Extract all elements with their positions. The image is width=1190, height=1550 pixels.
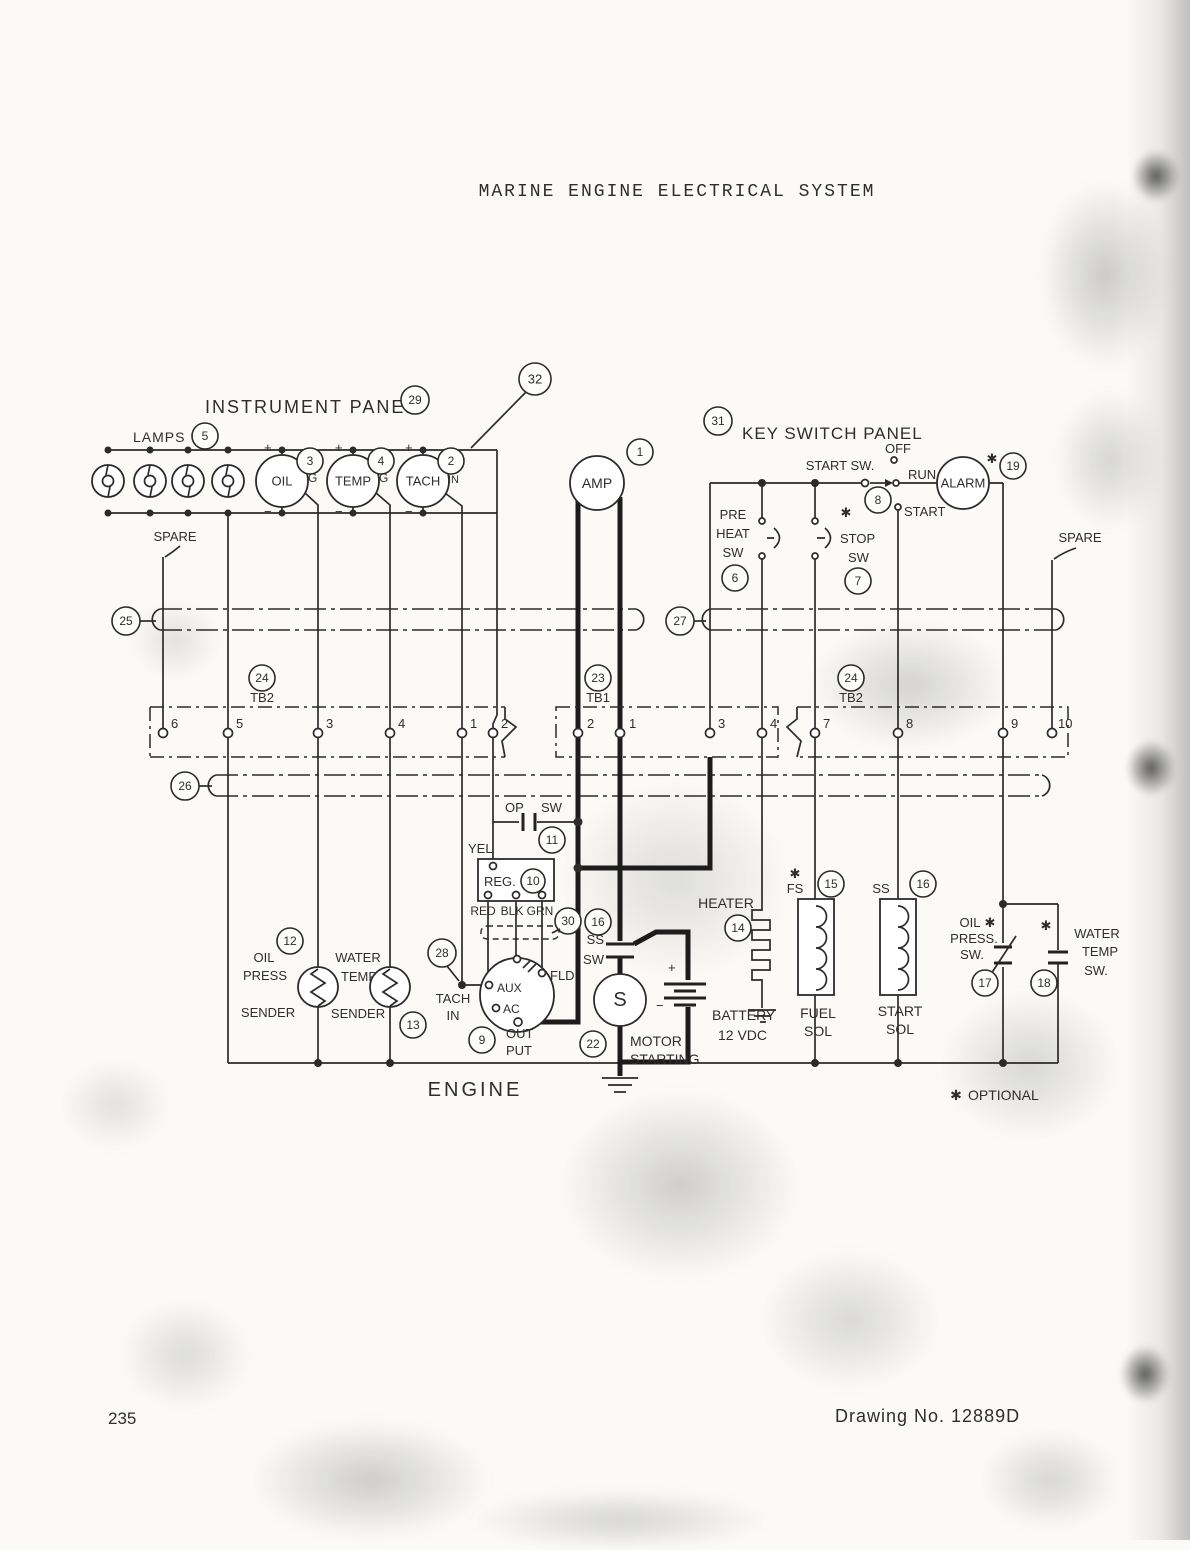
key-position-start: START — [904, 504, 945, 519]
harness-loom-27: 27 — [666, 607, 1064, 635]
heater: HEATER 14 — [698, 895, 776, 1022]
terminal-block-tb1: 23 TB1 2 1 3 4 — [556, 665, 778, 757]
callout-24: 24 — [844, 671, 858, 685]
alternator-fld-terminal: FLD — [550, 968, 575, 983]
callout-17: 17 — [978, 976, 992, 990]
callout-2: 2 — [448, 454, 455, 468]
page-number: 235 — [108, 1409, 136, 1428]
terminal-block-tb2-left: 24 TB2 6 5 3 4 1 2 — [150, 665, 516, 757]
callout-18: 18 — [1037, 976, 1051, 990]
tb2-right-name: TB2 — [839, 690, 863, 705]
callout-32-leader — [471, 392, 526, 448]
alternator-output-label-2: PUT — [506, 1043, 532, 1058]
callout-28-leader — [447, 966, 459, 981]
tb1-name: TB1 — [586, 690, 610, 705]
terminal-number: 1 — [470, 716, 477, 731]
water-temp-switch: ✱ WATER TEMP SW. 18 — [1031, 918, 1120, 996]
callout-6: 6 — [732, 571, 739, 585]
voltage-regulator: YEL REG. 10 RED BLK GRN 30 — [468, 841, 581, 939]
water-sender-label-1: WATER — [335, 950, 381, 965]
callout-14: 14 — [731, 921, 745, 935]
stop-label-2: SW — [848, 550, 870, 565]
start-switch-label: START SW. — [806, 458, 875, 473]
oil-press-sw-label-3: SW. — [960, 947, 984, 962]
callout-16: 16 — [591, 915, 605, 929]
start-solenoid-switch-contact: SS SW 16 — [583, 909, 634, 967]
tach-gauge-terminal: IN — [448, 474, 459, 486]
op-label: OP — [505, 800, 524, 815]
panel-lamp — [92, 465, 124, 497]
callout-3: 3 — [307, 454, 314, 468]
plus-mark: + — [335, 440, 343, 455]
scanned-page: { "colors":{"ink":"#2b2b2b","paper":"#fb… — [0, 0, 1190, 1540]
motor-starting-label-2: STARTING — [630, 1051, 700, 1067]
instrument-panel: INSTRUMENT PANEL 29 32 LAMPS 5 — [92, 363, 551, 557]
alternator-aux-terminal: AUX — [497, 981, 522, 995]
oil-gauge: OIL + − G 3 — [256, 440, 323, 519]
plus-mark: + — [264, 440, 272, 455]
callout-32: 32 — [528, 372, 542, 387]
pre-heat-label-1: PRE — [720, 507, 747, 522]
callout-31: 31 — [711, 414, 725, 428]
terminal-number: 4 — [770, 716, 777, 731]
fuel-solenoid-label-2: SOL — [804, 1023, 832, 1039]
water-temp-sw-label-1: WATER — [1074, 926, 1120, 941]
fuel-solenoid-label-1: FUEL — [800, 1005, 836, 1021]
stop-switch: ✱ STOP SW 7 — [812, 505, 875, 594]
amp-meter-label: AMP — [582, 475, 612, 491]
terminal-number: 5 — [236, 716, 243, 731]
optional-star-icon: ✱ — [950, 1087, 962, 1103]
oil-pressure-switch: OIL ✱ PRESS. SW. 17 — [950, 915, 1016, 996]
terminal-number: 1 — [629, 716, 636, 731]
water-temp-sender: WATER TEMP SENDER 13 — [331, 950, 426, 1038]
panel-lamp — [212, 465, 244, 497]
wire-color-yel: YEL — [468, 841, 493, 856]
callout-27: 27 — [673, 614, 687, 628]
instrument-panel-title: INSTRUMENT PANEL — [205, 397, 417, 417]
callout-4: 4 — [378, 454, 385, 468]
callout-8: 8 — [875, 493, 882, 507]
oil-press-sender: 12 OIL PRESS SENDER — [241, 928, 338, 1020]
key-position-run: RUN — [908, 467, 936, 482]
callout-28: 28 — [435, 946, 449, 960]
terminal-number: 2 — [501, 716, 508, 731]
stop-label-1: STOP — [840, 531, 875, 546]
water-temp-sw-label-2: TEMP — [1082, 944, 1118, 959]
alternator: AUX AC FLD OUT PUT 9 28 TACH IN — [428, 939, 575, 1058]
regulator-label: REG. — [484, 874, 516, 889]
terminal-number: 4 — [398, 716, 405, 731]
harness-loom-26: 26 — [171, 772, 1050, 800]
start-solenoid: SS 16 START SOL — [872, 871, 936, 1037]
ground-symbol — [602, 1078, 638, 1092]
tach-gauge: TACH + − IN 2 — [397, 440, 464, 519]
oil-pressure-op-switch: OP SW 11 — [505, 800, 565, 853]
spare-left-label: SPARE — [153, 529, 196, 544]
ss-contact-label-2: SW — [583, 952, 605, 967]
terminal-number: 9 — [1011, 716, 1018, 731]
callout-29: 29 — [408, 393, 422, 407]
start-solenoid-label-2: SOL — [886, 1021, 914, 1037]
battery-plus: + — [668, 960, 676, 975]
callout-16: 16 — [916, 877, 930, 891]
oil-press-sw-label-1: OIL — [960, 915, 981, 930]
callout-25: 25 — [119, 614, 133, 628]
callout-13: 13 — [406, 1018, 420, 1032]
panel-lamp — [172, 465, 204, 497]
key-switch-panel: 31 KEY SWITCH PANEL START SW. OFF RUN ST… — [704, 407, 1102, 594]
engine-label: ENGINE — [428, 1079, 523, 1101]
callout-10: 10 — [526, 874, 540, 888]
tb2-left-name: TB2 — [250, 690, 274, 705]
callout-26: 26 — [178, 779, 192, 793]
starter-s-label: S — [613, 989, 626, 1011]
minus-mark: − — [264, 504, 272, 519]
wire-color-red: RED — [470, 904, 496, 918]
plus-mark: + — [405, 440, 413, 455]
pre-heat-label-2: HEAT — [716, 526, 750, 541]
terminal-number: 8 — [906, 716, 913, 731]
callout-30: 30 — [561, 914, 575, 928]
oil-sender-label-1: OIL — [254, 950, 275, 965]
page-title: MARINE ENGINE ELECTRICAL SYSTEM — [479, 182, 876, 202]
alarm: ALARM ✱ 19 — [937, 451, 1026, 509]
pre-heat-switch: PRE HEAT SW 6 — [716, 507, 779, 591]
lamps-label: LAMPS — [133, 429, 185, 445]
oil-sender-label-3: SENDER — [241, 1005, 295, 1020]
optional-star-icon: ✱ — [985, 915, 996, 930]
callout-5: 5 — [202, 429, 209, 443]
wiring-diagram: MARINE ENGINE ELECTRICAL SYSTEM 25 27 26 — [0, 0, 1190, 1540]
temp-gauge: TEMP + − G 4 — [327, 440, 394, 519]
fuel-solenoid-tag: FS — [787, 881, 804, 896]
callout-12: 12 — [283, 934, 297, 948]
tach-in-label-2: IN — [447, 1008, 460, 1023]
amp-meter: AMP 1 — [570, 439, 653, 510]
start-solenoid-label-1: START — [878, 1003, 923, 1019]
terminal-number: 2 — [587, 716, 594, 731]
optional-star-icon: ✱ — [790, 866, 801, 881]
battery: + − BATTERY 12 VDC — [656, 960, 776, 1043]
optional-star-icon: ✱ — [1041, 918, 1052, 933]
callout-1: 1 — [637, 445, 644, 459]
callout-23: 23 — [591, 671, 605, 685]
pre-heat-label-3: SW — [723, 545, 745, 560]
spare-right-leader — [1054, 548, 1076, 559]
oil-press-sw-label-2: PRESS. — [950, 931, 998, 946]
harness-loom-25: 25 — [112, 607, 644, 635]
optional-star-icon: ✱ — [987, 451, 998, 466]
water-temp-sw-label-3: SW. — [1084, 963, 1108, 978]
callout-22: 22 — [586, 1037, 600, 1051]
temp-gauge-label: TEMP — [335, 474, 371, 489]
start-solenoid-tag: SS — [872, 881, 890, 896]
alarm-label: ALARM — [941, 476, 986, 491]
callout-11: 11 — [546, 833, 559, 847]
oil-gauge-label: OIL — [272, 474, 293, 489]
optional-legend: ✱ OPTIONAL — [950, 1087, 1039, 1103]
callout-24: 24 — [255, 671, 269, 685]
terminal-number: 6 — [171, 716, 178, 731]
terminal-number: 7 — [823, 716, 830, 731]
drawing-number: Drawing No. 12889D — [835, 1406, 1020, 1426]
alternator-output-label-1: OUT — [506, 1026, 534, 1041]
water-sender-label-3: SENDER — [331, 1006, 385, 1021]
spare-left-leader — [165, 546, 180, 557]
spare-right-label: SPARE — [1058, 530, 1101, 545]
callout-19: 19 — [1006, 459, 1020, 473]
terminal-number: 10 — [1058, 716, 1072, 731]
panel-lamp — [134, 465, 166, 497]
callout-9: 9 — [479, 1033, 486, 1047]
heater-label: HEATER — [698, 895, 754, 911]
terminal-block-tb2-right: 24 TB2 7 8 9 10 — [787, 665, 1072, 757]
wire-color-grn: GRN — [527, 904, 554, 918]
oil-sender-label-2: PRESS — [243, 968, 287, 983]
op-sw-label: SW — [541, 800, 563, 815]
tach-gauge-label: TACH — [406, 474, 440, 489]
optional-note: OPTIONAL — [968, 1087, 1039, 1103]
minus-mark: − — [405, 504, 413, 519]
tach-in-label-1: TACH — [436, 991, 470, 1006]
alternator-ac-terminal: AC — [503, 1002, 520, 1016]
motor-starting-label-1: MOTOR — [630, 1033, 682, 1049]
callout-7: 7 — [855, 574, 862, 588]
wire-color-blk: BLK — [501, 904, 524, 918]
callout-15: 15 — [824, 877, 838, 891]
minus-mark: − — [335, 504, 343, 519]
optional-star-icon: ✱ — [841, 505, 852, 520]
terminal-number: 3 — [718, 716, 725, 731]
terminal-number: 3 — [326, 716, 333, 731]
battery-minus: − — [656, 998, 664, 1013]
battery-label-2: 12 VDC — [718, 1027, 767, 1043]
key-position-off: OFF — [885, 441, 911, 456]
